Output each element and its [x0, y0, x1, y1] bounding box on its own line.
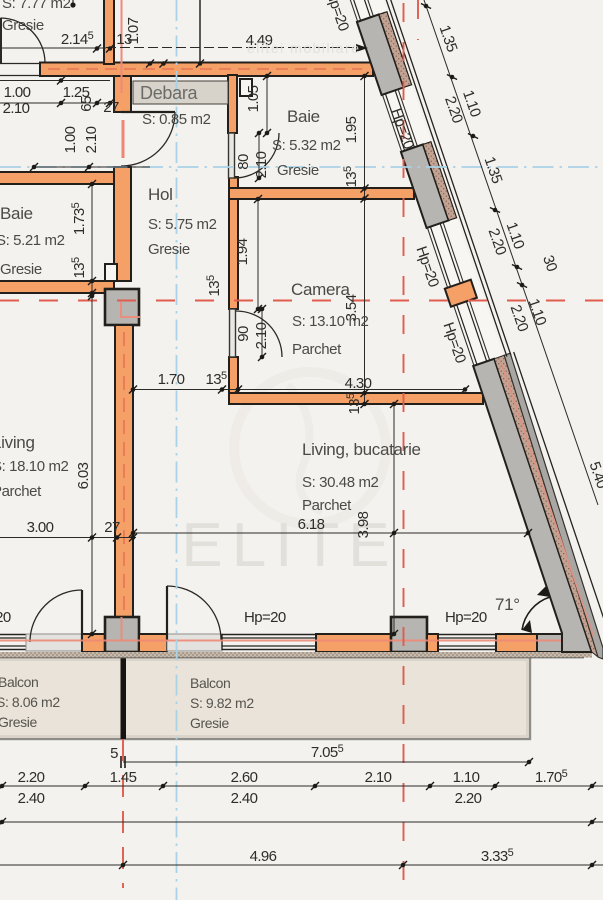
- svg-text:2.60: 2.60: [231, 769, 258, 786]
- svg-text:2.10: 2.10: [253, 151, 270, 178]
- svg-text:1.94: 1.94: [234, 238, 251, 265]
- svg-text:1.05: 1.05: [245, 85, 262, 112]
- svg-text:Balcon: Balcon: [190, 675, 230, 691]
- svg-text:Parchet: Parchet: [0, 483, 42, 500]
- svg-text:Gresie: Gresie: [148, 241, 190, 258]
- svg-text:90: 90: [235, 326, 252, 342]
- svg-text:6.18: 6.18: [298, 516, 325, 533]
- svg-text:Baie: Baie: [287, 107, 320, 126]
- svg-text:1.70: 1.70: [158, 371, 185, 388]
- svg-text:Gresie: Gresie: [277, 162, 319, 179]
- svg-text:1.07: 1.07: [125, 17, 142, 44]
- svg-text:4.96: 4.96: [250, 848, 277, 865]
- svg-text:S: 0.85 m2: S: 0.85 m2: [142, 111, 211, 128]
- svg-text:Gresie: Gresie: [0, 261, 42, 278]
- svg-text:1.45: 1.45: [110, 769, 137, 786]
- svg-text:Living, bucatarie: Living, bucatarie: [302, 440, 421, 459]
- svg-text:65: 65: [78, 96, 95, 112]
- svg-text:Baie: Baie: [0, 204, 33, 223]
- svg-text:3.54: 3.54: [343, 294, 360, 321]
- svg-text:2.10: 2.10: [3, 100, 30, 117]
- svg-text:2.10: 2.10: [83, 126, 100, 153]
- svg-text:S: 5.21 m2: S: 5.21 m2: [0, 232, 65, 249]
- svg-text:27: 27: [103, 99, 119, 116]
- svg-text:3.00: 3.00: [27, 519, 54, 536]
- svg-text:Hp=20: Hp=20: [244, 609, 286, 626]
- svg-text:S: 30.48 m2: S: 30.48 m2: [302, 474, 379, 491]
- svg-text:Parchet: Parchet: [302, 497, 352, 514]
- svg-text:S: 5.75 m2: S: 5.75 m2: [148, 216, 217, 233]
- svg-text:2.10: 2.10: [365, 769, 392, 786]
- svg-text:Gresie: Gresie: [2, 17, 44, 34]
- svg-text:1.95: 1.95: [343, 116, 360, 143]
- svg-text:80: 80: [235, 154, 252, 170]
- svg-text:2.20: 2.20: [455, 790, 482, 807]
- svg-text:elitei mobiliare: elitei mobiliare: [247, 40, 360, 56]
- svg-text:Hp=20: Hp=20: [445, 609, 487, 626]
- svg-text:S: 5.32 m2: S: 5.32 m2: [272, 137, 341, 154]
- svg-text:Camera: Camera: [291, 280, 351, 299]
- svg-text:5: 5: [110, 745, 118, 762]
- svg-text:Hp=20: Hp=20: [0, 609, 11, 626]
- svg-text:Parchet: Parchet: [292, 341, 342, 358]
- svg-text:71°: 71°: [495, 595, 520, 614]
- svg-text:S: 7.77 m2: S: 7.77 m2: [2, 0, 71, 12]
- svg-text:4.30: 4.30: [345, 375, 372, 392]
- svg-text:Hol: Hol: [148, 185, 173, 204]
- svg-text:S: 9.82 m2: S: 9.82 m2: [190, 695, 254, 711]
- svg-text:1.00: 1.00: [62, 126, 79, 153]
- svg-text:Debara: Debara: [140, 83, 199, 103]
- svg-text:2.40: 2.40: [231, 790, 258, 807]
- svg-text:2.10: 2.10: [253, 322, 270, 349]
- svg-text:Gresie: Gresie: [190, 715, 229, 731]
- svg-text:6.03: 6.03: [75, 462, 92, 489]
- svg-text:1.00: 1.00: [4, 84, 31, 101]
- svg-text:S: 18.10 m2: S: 18.10 m2: [0, 458, 69, 475]
- svg-text:3.98: 3.98: [355, 511, 372, 538]
- svg-text:27: 27: [104, 519, 120, 536]
- svg-text:2.20: 2.20: [18, 769, 45, 786]
- svg-text:Balcon: Balcon: [0, 674, 38, 690]
- svg-text:1.10: 1.10: [453, 769, 480, 786]
- svg-text:Living: Living: [0, 433, 35, 452]
- svg-text:2.40: 2.40: [18, 790, 45, 807]
- svg-text:Gresie: Gresie: [0, 714, 37, 730]
- svg-text:S: 8.06 m2: S: 8.06 m2: [0, 694, 60, 710]
